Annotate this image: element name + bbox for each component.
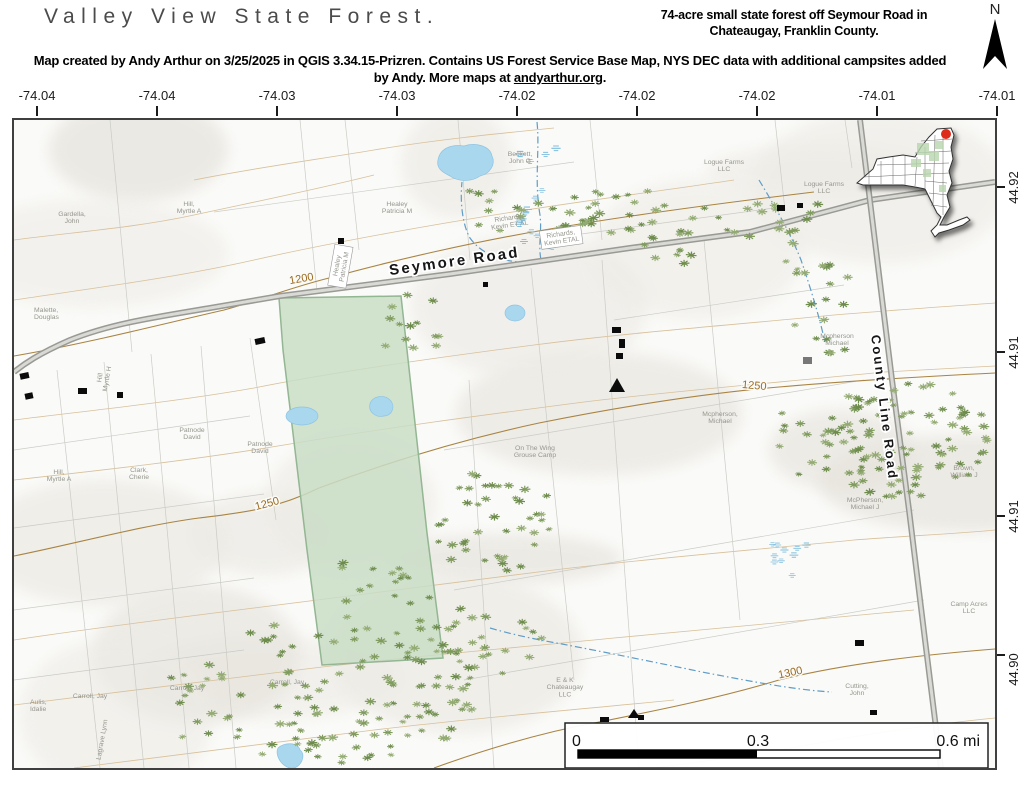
- svg-text:Brown,William J: Brown,William J: [950, 465, 977, 479]
- marsh-icon: [542, 152, 550, 156]
- owner-label: Carroll, Jay: [170, 685, 205, 692]
- tree-icon: [526, 516, 534, 521]
- marsh-icon: [802, 543, 810, 547]
- state-forest-parcel: [279, 296, 443, 665]
- tree-icon: [947, 421, 958, 429]
- tree-icon: [387, 744, 395, 749]
- tree-icon: [822, 296, 831, 302]
- tree-icon: [843, 274, 853, 281]
- tree-icon: [455, 485, 463, 491]
- longitude-label: -74.04: [19, 88, 56, 103]
- scale-end: 0.6 mi: [936, 733, 980, 750]
- svg-text:PatnodeDavid: PatnodeDavid: [179, 427, 205, 441]
- longitude-label: -74.02: [619, 88, 656, 103]
- tree-icon: [275, 720, 286, 727]
- tree-icon: [838, 301, 849, 308]
- latitude-label: 44.91: [1003, 320, 1023, 384]
- marsh-icon: [551, 146, 560, 151]
- owner-label: HealeyPatricia M: [382, 201, 413, 215]
- svg-text:PatnodeDavid: PatnodeDavid: [247, 441, 273, 455]
- svg-text:HillMyrtle H: HillMyrtle H: [95, 365, 113, 392]
- tree-icon: [387, 752, 394, 757]
- tree-icon: [948, 391, 956, 397]
- map-subtitle: 74-acre small state forest off Seymour R…: [646, 8, 942, 39]
- latitude-label: 44.91: [1003, 484, 1023, 548]
- tree-icon: [462, 499, 473, 507]
- longitude-label: -74.03: [379, 88, 416, 103]
- svg-text:On The WingGrouse Camp: On The WingGrouse Camp: [514, 445, 557, 459]
- tree-icon: [930, 419, 938, 425]
- owner-label: PatnodeDavid: [247, 441, 273, 455]
- owner-label: HillMyrtle H: [95, 365, 113, 392]
- tree-icon: [338, 754, 347, 760]
- tree-icon: [404, 733, 412, 739]
- marsh-icon: [771, 560, 779, 564]
- svg-text:Hill,Myrtle A: Hill,Myrtle A: [177, 201, 202, 215]
- svg-text:HealeyPatricia M: HealeyPatricia M: [382, 201, 413, 215]
- tree-icon: [358, 719, 369, 727]
- svg-text:Clark,Cherie: Clark,Cherie: [129, 467, 149, 481]
- svg-text:Malette,Douglas: Malette,Douglas: [34, 307, 60, 321]
- tree-icon: [585, 205, 592, 210]
- tree-icon: [533, 200, 544, 207]
- marsh-icon: [780, 548, 788, 552]
- contour-label: 1300: [777, 665, 803, 682]
- tree-icon: [314, 754, 322, 759]
- marsh-icon: [777, 559, 784, 563]
- tree-icon: [297, 727, 306, 733]
- marsh-icon: [793, 546, 801, 550]
- contour-label: 1250: [742, 379, 767, 393]
- tree-icon: [545, 526, 552, 531]
- scale-bar: 0 0.3 0.6 mi: [565, 723, 988, 768]
- tree-icon: [489, 513, 500, 521]
- latitude-label: 44.90: [1003, 637, 1023, 701]
- owner-label: Hill,Myrtle A: [177, 201, 202, 215]
- tree-icon: [266, 741, 277, 748]
- location-dot: [941, 129, 951, 139]
- pond: [277, 744, 303, 768]
- map-frame: Gardella,JohnHill,Myrtle AMalette,Dougla…: [12, 118, 997, 770]
- tree-icon: [977, 411, 987, 418]
- marsh-icon: [774, 543, 782, 547]
- tree-icon: [464, 485, 473, 492]
- tree-icon: [826, 281, 835, 287]
- tree-icon: [956, 404, 965, 410]
- tree-icon: [441, 517, 448, 522]
- latitude-label: 44.92: [1003, 155, 1023, 219]
- tree-icon: [236, 727, 243, 732]
- tree-icon: [351, 744, 361, 751]
- owner-label: Camp AcresLLC: [950, 601, 988, 615]
- svg-text:Aulis,Idalie: Aulis,Idalie: [30, 699, 47, 713]
- tree-icon: [812, 336, 820, 342]
- axis-tick: [876, 106, 878, 116]
- owner-label: Clark,Cherie: [129, 467, 149, 481]
- svg-text:Carroll, Jay: Carroll, Jay: [73, 693, 108, 700]
- marsh-icon: [790, 553, 799, 557]
- marsh-icon: [538, 189, 545, 193]
- tree-icon: [799, 269, 809, 276]
- scale-mid: 0.3: [747, 733, 769, 750]
- marsh-icon: [769, 543, 776, 546]
- tree-icon: [537, 511, 546, 517]
- map-document: Valley View State Forest. 74-acre small …: [0, 0, 1024, 791]
- owner-label: Beckett,John G: [508, 151, 533, 165]
- longitude-label: -74.04: [139, 88, 176, 103]
- axis-tick: [396, 106, 398, 116]
- owner-label: Aulis,Idalie: [30, 699, 47, 713]
- tree-icon: [503, 482, 514, 489]
- owner-label: Carroll, Jay: [270, 679, 305, 686]
- tree-icon: [348, 730, 359, 738]
- map-canvas: Gardella,JohnHill,Myrtle AMalette,Dougla…: [14, 120, 995, 768]
- tree-icon: [317, 734, 328, 742]
- owner-label: On The WingGrouse Camp: [514, 445, 557, 459]
- marsh-icon: [771, 554, 779, 558]
- svg-text:Carroll, Jay: Carroll, Jay: [170, 685, 205, 692]
- svg-text:Cutting,John: Cutting,John: [845, 683, 869, 697]
- tree-icon: [481, 495, 491, 503]
- latitude-axis: 44.9244.9144.9144.90: [997, 0, 1024, 791]
- tree-icon: [258, 751, 266, 757]
- tree-icon: [907, 410, 915, 415]
- campsite-icon: [628, 709, 640, 718]
- tree-icon: [840, 346, 850, 353]
- owner-label: McPherson,Michael J: [847, 497, 883, 511]
- tree-icon: [564, 208, 576, 216]
- pond: [286, 407, 318, 425]
- axis-tick: [36, 106, 38, 116]
- tree-icon: [516, 525, 526, 532]
- tree-icon: [570, 194, 579, 200]
- page-title: Valley View State Forest.: [44, 5, 439, 29]
- axis-tick: [516, 106, 518, 116]
- tree-icon: [538, 517, 546, 523]
- tree-icon: [487, 482, 498, 490]
- marsh-icon: [789, 574, 796, 578]
- tree-icon: [904, 381, 913, 387]
- axis-tick: [756, 106, 758, 116]
- credit-period: .: [603, 70, 606, 85]
- owner-label: McphersonMichael: [820, 333, 854, 347]
- tree-icon: [304, 747, 313, 754]
- tree-icon: [791, 322, 799, 327]
- axis-tick: [636, 106, 638, 116]
- tree-icon: [233, 734, 242, 740]
- pond: [505, 305, 525, 321]
- axis-tick: [156, 106, 158, 116]
- tree-icon: [383, 729, 393, 735]
- scale-start: 0: [572, 733, 581, 750]
- owner-label: Brown,William J: [950, 465, 977, 479]
- owner-label: Cutting,John: [845, 683, 869, 697]
- svg-text:Carroll, Jay: Carroll, Jay: [270, 679, 305, 686]
- contour-label: 1200: [288, 271, 314, 287]
- credit-link[interactable]: andyarthur.org: [514, 70, 603, 85]
- tree-icon: [291, 721, 298, 726]
- axis-tick: [276, 106, 278, 116]
- tree-icon: [474, 502, 482, 508]
- tree-icon: [805, 300, 817, 308]
- tree-icon: [369, 732, 379, 739]
- pond: [370, 397, 393, 417]
- map-credit: Map created by Andy Arthur on 3/25/2025 …: [30, 53, 950, 87]
- owner-label: Malette,Douglas: [34, 307, 60, 321]
- tree-icon: [519, 485, 530, 493]
- svg-text:McphersonMichael: McphersonMichael: [820, 333, 854, 347]
- tree-icon: [337, 760, 346, 766]
- longitude-label: -74.01: [859, 88, 896, 103]
- longitude-label: -74.02: [739, 88, 776, 103]
- tree-icon: [924, 412, 935, 419]
- svg-text:Camp AcresLLC: Camp AcresLLC: [950, 601, 988, 615]
- svg-text:Beckett,John G: Beckett,John G: [508, 151, 533, 165]
- longitude-label: -74.03: [259, 88, 296, 103]
- owner-label: Carroll, Jay: [73, 693, 108, 700]
- tree-icon: [481, 483, 489, 489]
- tree-icon: [474, 222, 483, 228]
- tree-icon: [778, 410, 786, 416]
- tree-icon: [408, 344, 419, 352]
- owner-label: HealeyPatricia M: [328, 244, 353, 288]
- longitude-axis: -74.04-74.04-74.03-74.03-74.02-74.02-74.…: [0, 88, 1024, 118]
- tree-icon: [542, 493, 551, 499]
- tree-icon: [611, 194, 620, 200]
- longitude-label: -74.02: [499, 88, 536, 103]
- tree-icon: [938, 406, 947, 412]
- tree-icon: [843, 393, 854, 401]
- owner-label: PatnodeDavid: [179, 427, 205, 441]
- tree-icon: [978, 423, 989, 431]
- svg-text:McPherson,Michael J: McPherson,Michael J: [847, 497, 883, 511]
- tree-icon: [502, 528, 510, 534]
- credit-text: Map created by Andy Arthur on 3/25/2025 …: [34, 53, 947, 85]
